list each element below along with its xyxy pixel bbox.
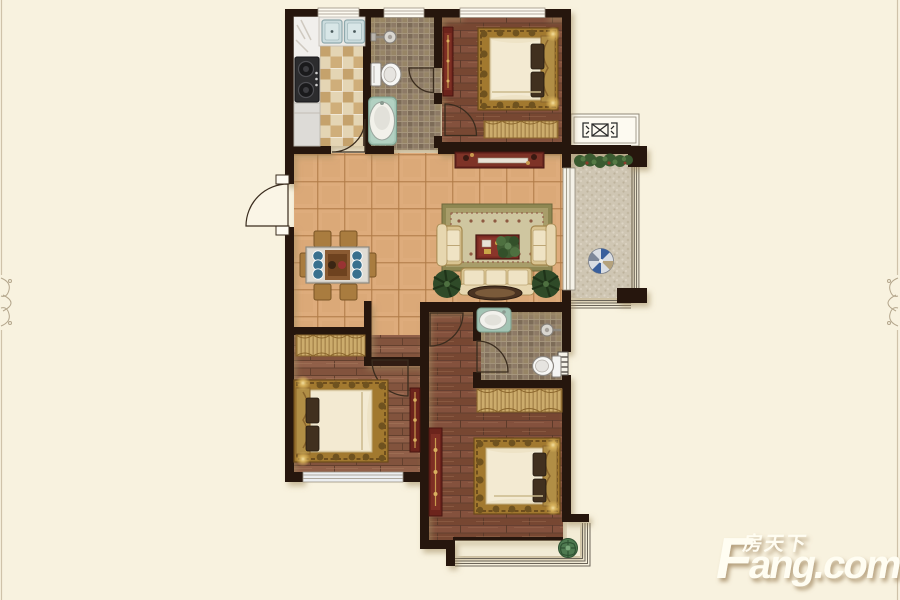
svg-text:ang.com: ang.com (746, 542, 900, 587)
